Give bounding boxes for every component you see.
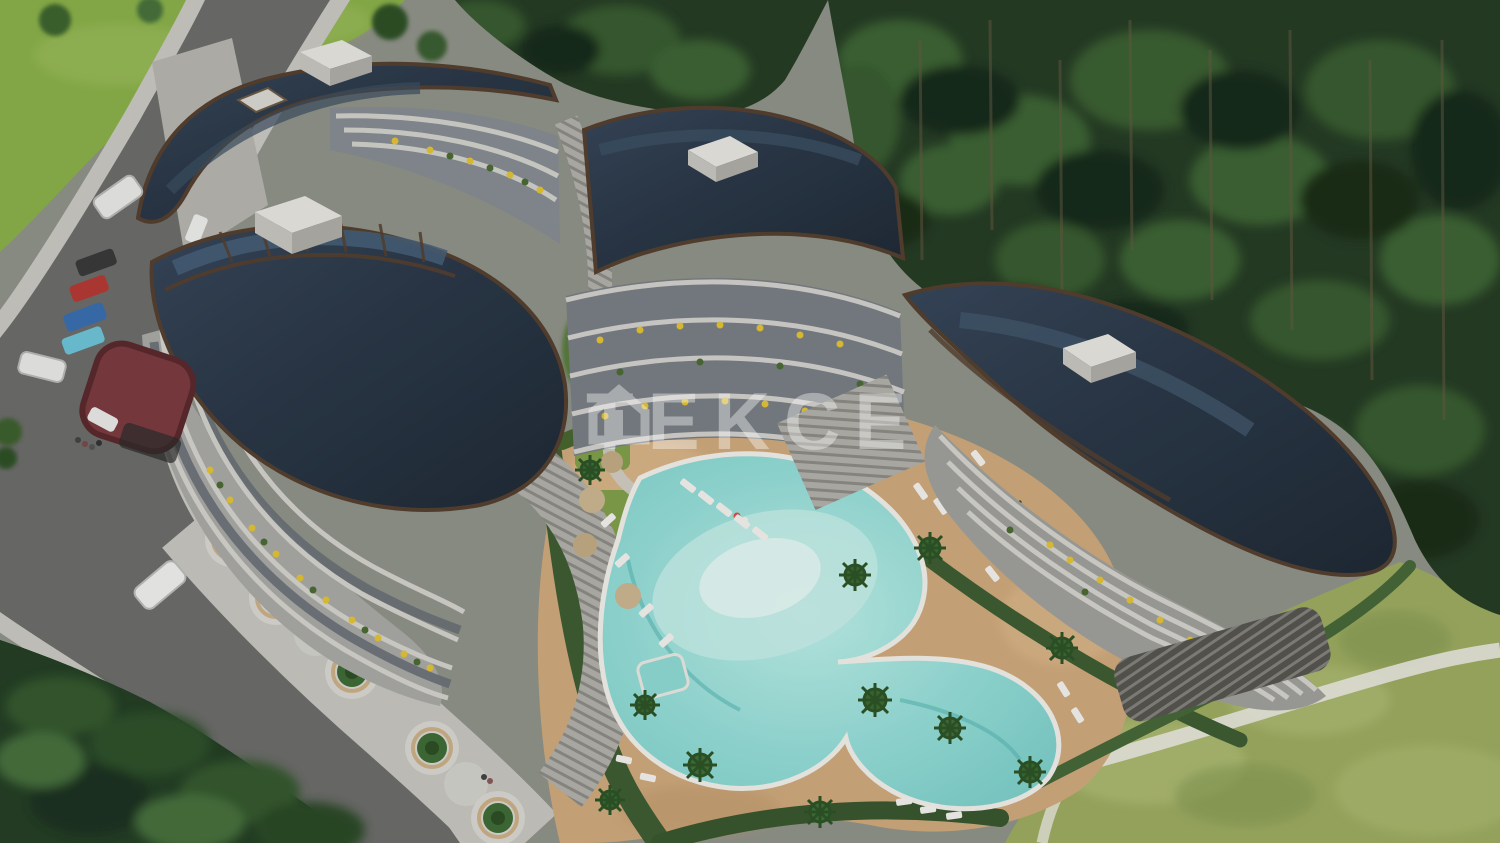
render-canvas	[0, 0, 1500, 843]
aerial-render-scene: TEKCE	[0, 0, 1500, 843]
film-grain-overlay	[0, 0, 1500, 843]
